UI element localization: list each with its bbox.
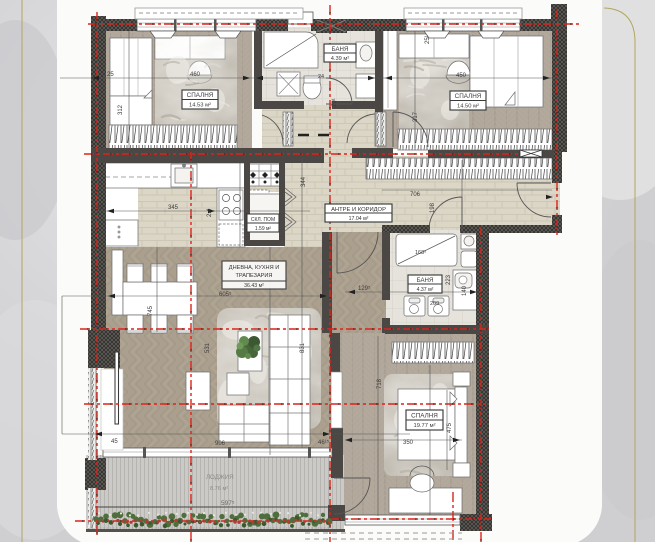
svg-text:14.53 м²: 14.53 м² xyxy=(189,103,211,109)
svg-text:БАНЯ: БАНЯ xyxy=(332,46,349,53)
svg-text:450: 450 xyxy=(456,73,467,79)
svg-text:312: 312 xyxy=(118,104,124,115)
svg-text:706: 706 xyxy=(410,192,421,198)
svg-text:4.39 м²: 4.39 м² xyxy=(331,56,350,62)
svg-text:25: 25 xyxy=(107,72,114,78)
svg-text:168⁵: 168⁵ xyxy=(415,249,426,256)
svg-text:745: 745 xyxy=(148,305,154,316)
svg-text:8.76 м²: 8.76 м² xyxy=(210,486,228,492)
svg-text:344: 344 xyxy=(301,176,307,187)
svg-text:СПАЛНЯ: СПАЛНЯ xyxy=(411,413,438,420)
svg-text:19.77 м²: 19.77 м² xyxy=(413,423,435,429)
svg-text:14.50 м²: 14.50 м² xyxy=(457,104,479,110)
svg-text:198: 198 xyxy=(430,202,436,213)
svg-text:209: 209 xyxy=(430,301,439,307)
svg-text:ТРАПЕЗАРИЯ: ТРАПЕЗАРИЯ xyxy=(236,273,273,279)
svg-text:АНТРЕ И КОРИДОР: АНТРЕ И КОРИДОР xyxy=(331,207,386,213)
svg-text:906: 906 xyxy=(215,441,226,447)
svg-text:140: 140 xyxy=(462,285,468,296)
svg-text:40: 40 xyxy=(96,205,103,211)
svg-text:СПАЛНЯ: СПАЛНЯ xyxy=(187,92,214,99)
svg-text:605⁵: 605⁵ xyxy=(219,291,232,298)
svg-text:СПАЛНЯ: СПАЛНЯ xyxy=(455,93,482,100)
svg-text:20¹: 20¹ xyxy=(332,98,338,107)
svg-text:25¹: 25¹ xyxy=(425,35,431,44)
svg-text:345: 345 xyxy=(168,205,179,211)
svg-text:718: 718 xyxy=(377,378,383,389)
svg-text:45: 45 xyxy=(111,439,118,445)
svg-text:223: 223 xyxy=(446,274,452,285)
svg-text:129⁵: 129⁵ xyxy=(358,285,371,292)
svg-text:36.43 м²: 36.43 м² xyxy=(244,283,264,289)
svg-text:17.04 м²: 17.04 м² xyxy=(349,216,369,222)
svg-text:ЛОДЖИЯ: ЛОДЖИЯ xyxy=(206,474,234,481)
svg-text:24: 24 xyxy=(318,74,324,80)
svg-text:317: 317 xyxy=(413,111,419,122)
svg-text:531: 531 xyxy=(205,342,211,353)
svg-text:1.59 м²: 1.59 м² xyxy=(255,226,272,232)
svg-text:СКЛ. ПОМ: СКЛ. ПОМ xyxy=(251,217,275,223)
svg-text:ДНЕВНА, КУХНЯ И: ДНЕВНА, КУХНЯ И xyxy=(229,265,279,271)
svg-text:46¹⁵: 46¹⁵ xyxy=(318,439,330,446)
svg-text:475: 475 xyxy=(447,422,453,433)
svg-text:350: 350 xyxy=(403,440,414,446)
svg-text:БАНЯ: БАНЯ xyxy=(417,277,434,284)
svg-text:460: 460 xyxy=(190,72,201,78)
svg-text:597⁵: 597⁵ xyxy=(221,500,235,507)
svg-text:4.37 м²: 4.37 м² xyxy=(417,287,434,293)
svg-text:2.4: 2.4 xyxy=(207,208,213,217)
svg-text:831: 831 xyxy=(300,342,306,353)
